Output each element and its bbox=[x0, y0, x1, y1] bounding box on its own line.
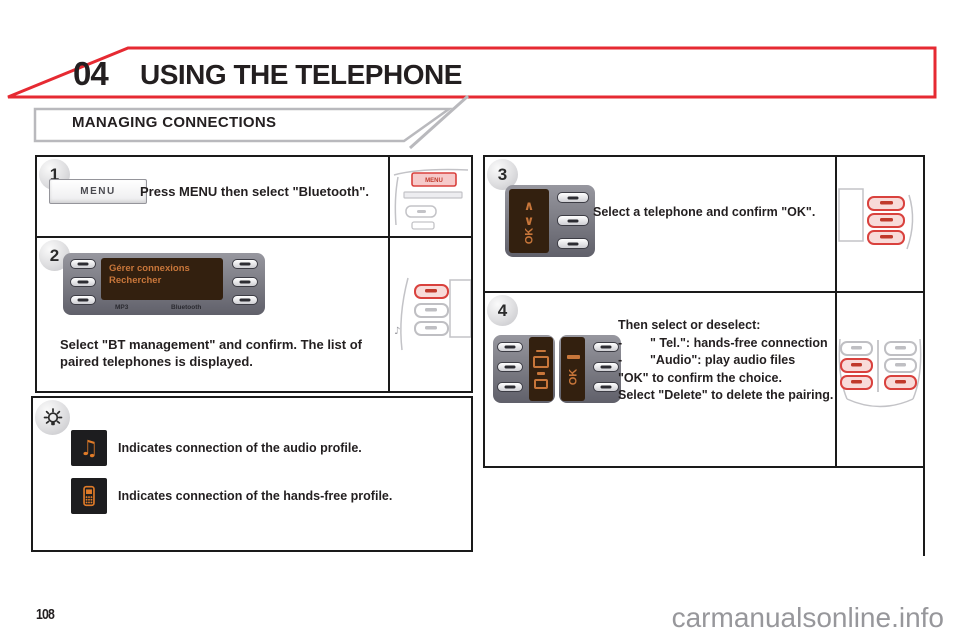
screen-button bbox=[593, 382, 619, 392]
audio-profile-row: ♫ Indicates connection of the audio prof… bbox=[71, 430, 461, 466]
screen-corner-device-left bbox=[493, 335, 555, 403]
step-4-line-delete: Select "Delete" to delete the pairing. bbox=[618, 387, 836, 405]
screen-menu-line-1: Gérer connexions bbox=[109, 263, 223, 275]
left-buttons-thumbnail: ♪ bbox=[390, 238, 471, 391]
step-4-thumbnail-panel bbox=[835, 291, 925, 468]
step-4-intro: Then select or deselect: bbox=[618, 317, 836, 335]
screen-button bbox=[70, 295, 96, 305]
right-edge-rule bbox=[923, 466, 925, 556]
bullet-tel: - " Tel.": hands-free connection bbox=[618, 335, 836, 353]
screen-menu-line-2: Rechercher bbox=[109, 275, 223, 287]
step-1-thumbnail-panel: MENU bbox=[388, 155, 473, 238]
radio-fascia-thumbnail: MENU bbox=[390, 157, 471, 236]
section-title: MANAGING CONNECTIONS bbox=[72, 114, 276, 131]
screen-button bbox=[70, 277, 96, 287]
dual-buttons-thumbnail bbox=[837, 293, 923, 466]
radio-display-unit: Gérer connexions Rechercher MP3 Bluetoot… bbox=[63, 253, 265, 315]
tel-icon bbox=[533, 356, 549, 368]
step-2-thumbnail-panel: ♪ bbox=[388, 236, 473, 393]
step-3-instruction: Select a telephone and confirm "OK". bbox=[593, 204, 831, 221]
manual-page: 04 USING THE TELEPHONE MANAGING CONNECTI… bbox=[0, 0, 960, 640]
menu-key: MENU bbox=[49, 179, 147, 204]
step-2-instruction: Select "BT management" and confirm. The … bbox=[60, 336, 390, 370]
step-4-line-ok: "OK" to confirm the choice. bbox=[618, 370, 836, 388]
audio-profile-text: Indicates connection of the audio profil… bbox=[118, 441, 362, 455]
handsfree-profile-text: Indicates connection of the hands-free p… bbox=[118, 489, 392, 503]
audio-icon bbox=[537, 372, 545, 375]
ok-label: OK bbox=[567, 369, 579, 386]
screen-button bbox=[70, 259, 96, 269]
mp3-label: MP3 bbox=[115, 304, 128, 311]
display-screen bbox=[529, 337, 553, 401]
screen-button bbox=[232, 277, 258, 287]
ok-label: OK bbox=[523, 228, 535, 245]
lightbulb-icon bbox=[35, 400, 70, 435]
step-2-panel: 2 Gérer connexions Rechercher MP3 Blueto… bbox=[35, 236, 390, 393]
display-screen: OK bbox=[561, 337, 585, 401]
display-screen: Gérer connexions Rechercher bbox=[101, 258, 223, 300]
tip-box: ♫ Indicates connection of the audio prof… bbox=[31, 396, 473, 552]
screen-corner-device: ∧ ∨ OK bbox=[505, 185, 595, 257]
tel-icon bbox=[536, 350, 546, 353]
screen-corner-device-right: OK bbox=[559, 335, 621, 403]
music-note-icon: ♫ bbox=[71, 430, 107, 466]
screen-button bbox=[232, 295, 258, 305]
screen-button bbox=[557, 215, 589, 226]
up-arrow-icon: ∧ bbox=[524, 200, 535, 213]
step-4-panel: 4 OK Then select or deselect: bbox=[483, 291, 837, 468]
screen-button bbox=[557, 192, 589, 203]
right-buttons-thumbnail bbox=[837, 157, 923, 291]
step-1-panel: 1 MENU Press MENU then select "Bluetooth… bbox=[35, 155, 390, 238]
step-4-number: 4 bbox=[487, 295, 518, 326]
chapter-number: 04 bbox=[73, 55, 108, 93]
watermark: carmanualsonline.info bbox=[672, 602, 944, 634]
display-screen: ∧ ∨ OK bbox=[509, 189, 549, 253]
screen-button bbox=[593, 362, 619, 372]
music-note-small-icon: ♪ bbox=[394, 326, 400, 337]
screen-button bbox=[497, 382, 523, 392]
handsfree-profile-row: Indicates connection of the hands-free p… bbox=[71, 478, 461, 514]
thumb-menu-label: MENU bbox=[425, 178, 443, 184]
bullet-audio: - "Audio": play audio files bbox=[618, 352, 836, 370]
screen-button bbox=[497, 342, 523, 352]
screen-button bbox=[593, 342, 619, 352]
screen-button bbox=[557, 238, 589, 249]
mobile-phone-icon bbox=[71, 478, 107, 514]
step-4-instruction: Then select or deselect: - " Tel.": hand… bbox=[618, 317, 836, 405]
step-1-instruction: Press MENU then select "Bluetooth". bbox=[140, 183, 380, 200]
dash-icon bbox=[567, 355, 580, 359]
chapter-title: USING THE TELEPHONE bbox=[140, 59, 462, 91]
screen-button bbox=[497, 362, 523, 372]
page-number: 108 bbox=[36, 606, 54, 623]
down-arrow-icon: ∨ bbox=[524, 215, 535, 228]
step-3-panel: 3 ∧ ∨ OK Select a telephone and confirm … bbox=[483, 155, 837, 293]
step-3-thumbnail-panel bbox=[835, 155, 925, 293]
audio-icon bbox=[534, 379, 548, 389]
step-4-badge: 4 bbox=[485, 293, 525, 333]
bluetooth-label: Bluetooth bbox=[171, 304, 201, 311]
screen-button bbox=[232, 259, 258, 269]
